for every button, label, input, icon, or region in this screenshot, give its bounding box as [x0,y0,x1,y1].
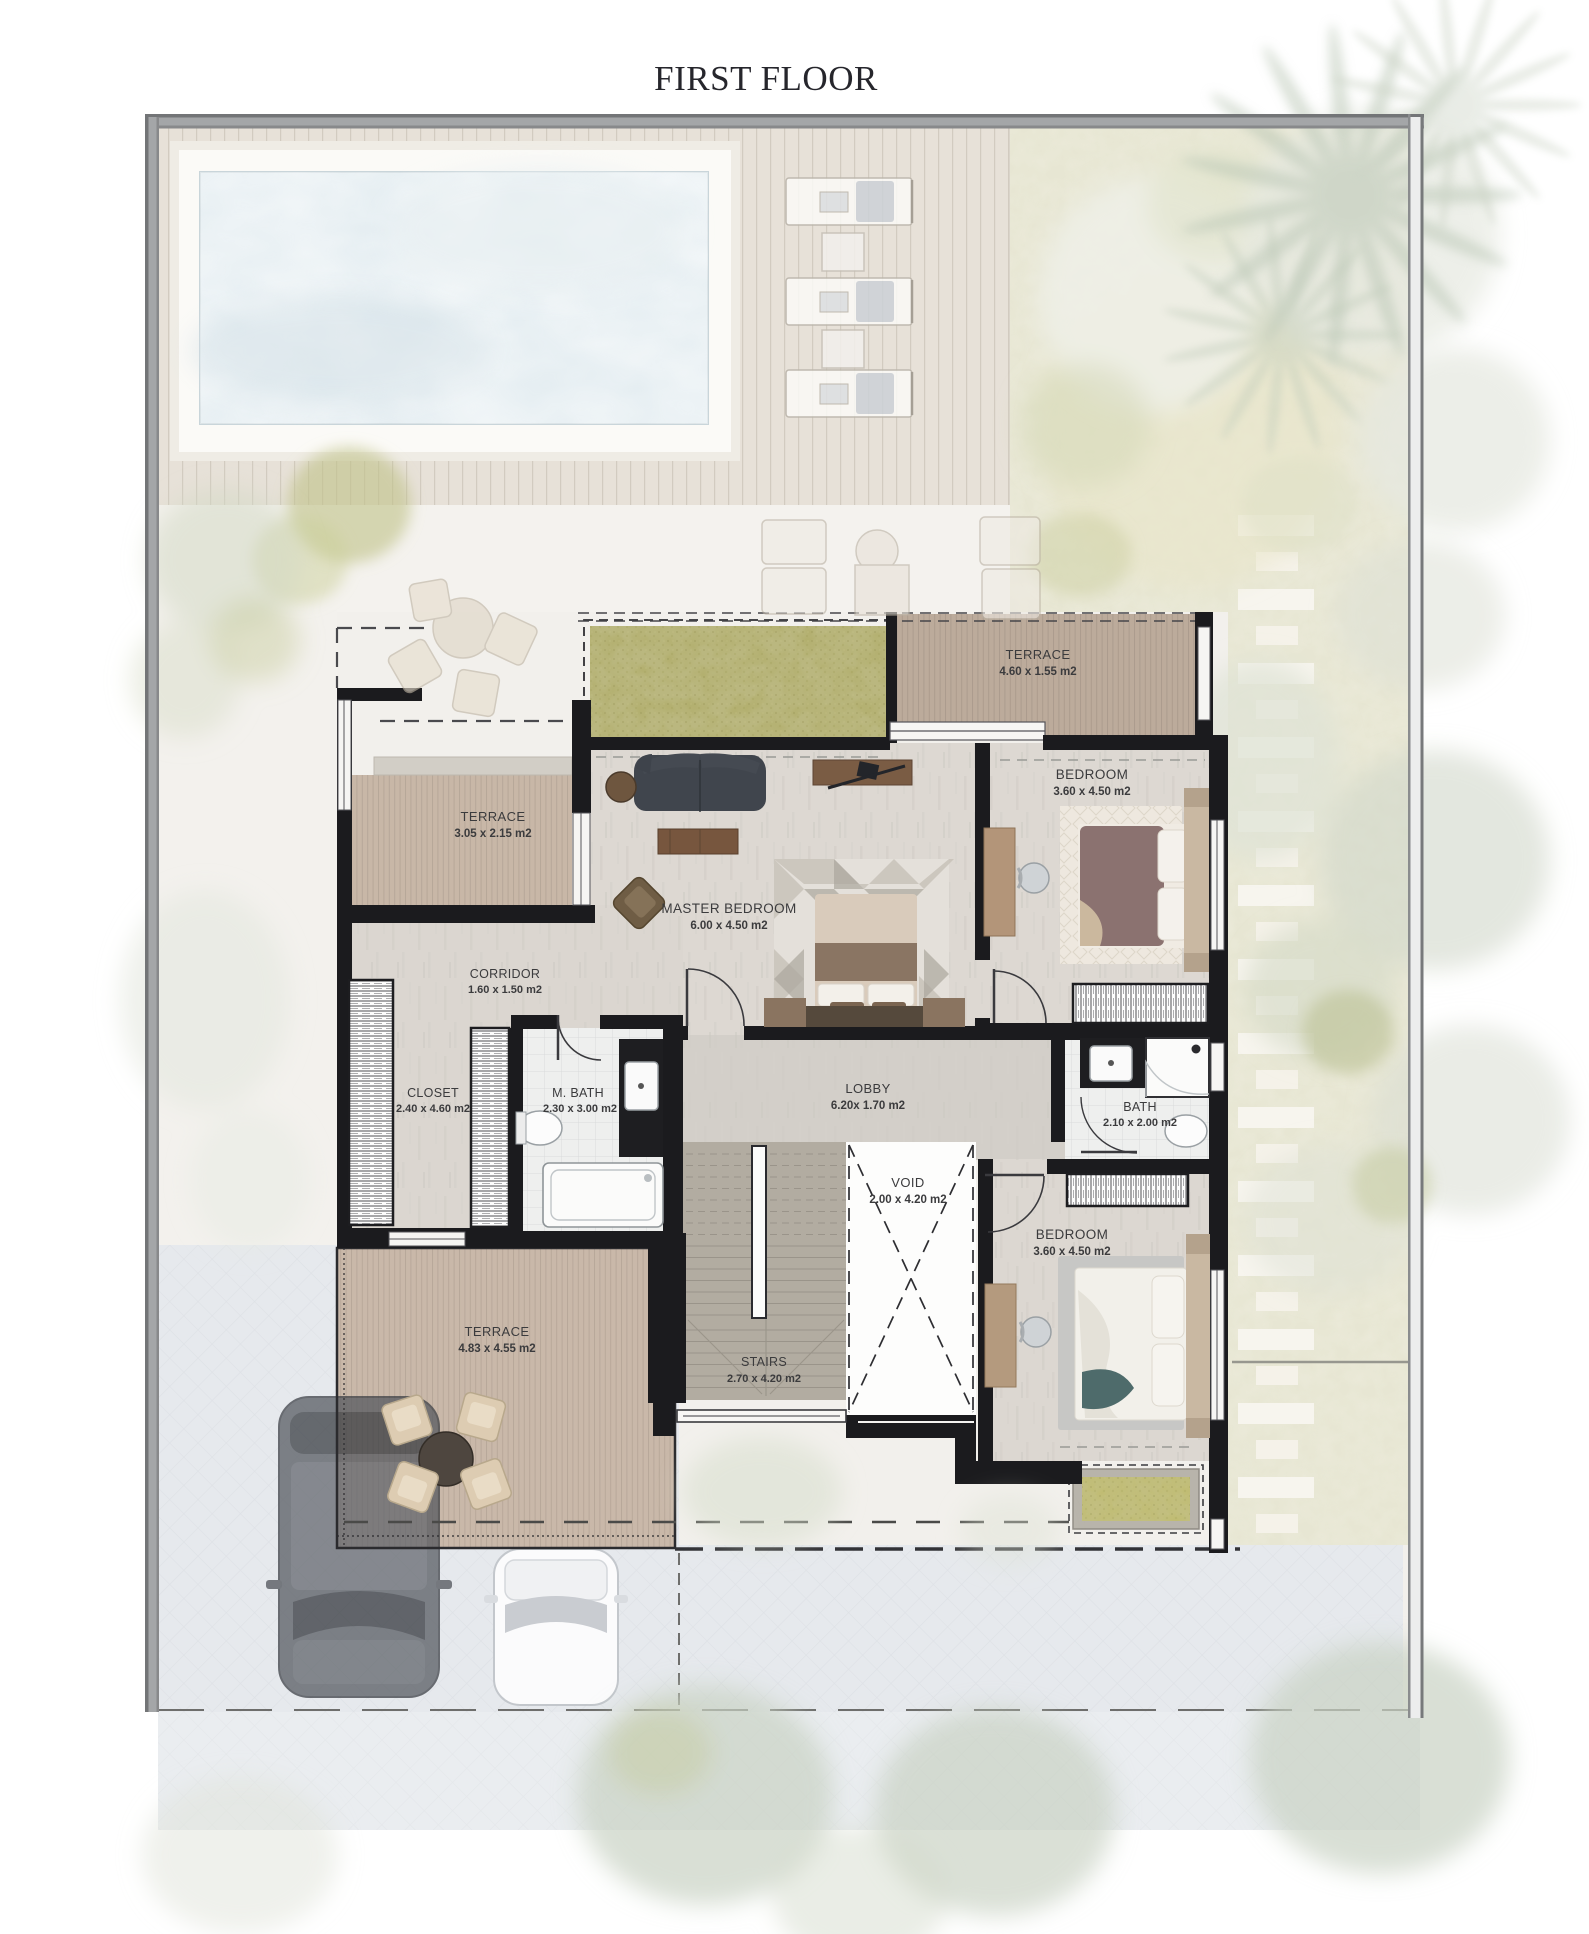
svg-text:TERRACE: TERRACE [465,1324,530,1339]
svg-text:3.60 x 4.50 m2: 3.60 x 4.50 m2 [1053,786,1130,798]
svg-text:CORRIDOR: CORRIDOR [470,967,540,981]
svg-text:3.05 x 2.15 m2: 3.05 x 2.15 m2 [454,828,531,840]
svg-text:2.30 x 3.00 m2: 2.30 x 3.00 m2 [543,1103,617,1115]
svg-text:BATH: BATH [1123,1100,1157,1114]
svg-text:6.00 x 4.50 m2: 6.00 x 4.50 m2 [690,920,767,932]
svg-text:2.10 x 2.00 m2: 2.10 x 2.00 m2 [1103,1117,1177,1129]
svg-text:BEDROOM: BEDROOM [1036,1227,1109,1242]
svg-text:STAIRS: STAIRS [741,1355,787,1369]
svg-text:2.40 x 4.60 m2: 2.40 x 4.60 m2 [396,1103,470,1115]
svg-text:2.00 x 4.20 m2: 2.00 x 4.20 m2 [869,1194,946,1206]
svg-text:6.20x 1.70 m2: 6.20x 1.70 m2 [831,1100,905,1112]
svg-text:TERRACE: TERRACE [461,809,526,824]
svg-text:4.60 x 1.55 m2: 4.60 x 1.55 m2 [999,666,1076,678]
svg-text:1.60 x 1.50 m2: 1.60 x 1.50 m2 [468,984,542,996]
svg-text:M. BATH: M. BATH [552,1086,604,1100]
svg-text:3.60 x 4.50 m2: 3.60 x 4.50 m2 [1033,1246,1110,1258]
svg-text:VOID: VOID [891,1175,924,1190]
svg-text:TERRACE: TERRACE [1006,647,1071,662]
svg-text:FIRST FLOOR: FIRST FLOOR [654,59,878,98]
svg-text:2.70 x 4.20 m2: 2.70 x 4.20 m2 [727,1373,801,1385]
svg-text:MASTER BEDROOM: MASTER BEDROOM [661,901,796,916]
svg-text:LOBBY: LOBBY [845,1081,890,1096]
svg-text:BEDROOM: BEDROOM [1056,767,1129,782]
svg-text:CLOSET: CLOSET [407,1086,459,1100]
svg-text:4.83 x 4.55 m2: 4.83 x 4.55 m2 [458,1343,535,1355]
